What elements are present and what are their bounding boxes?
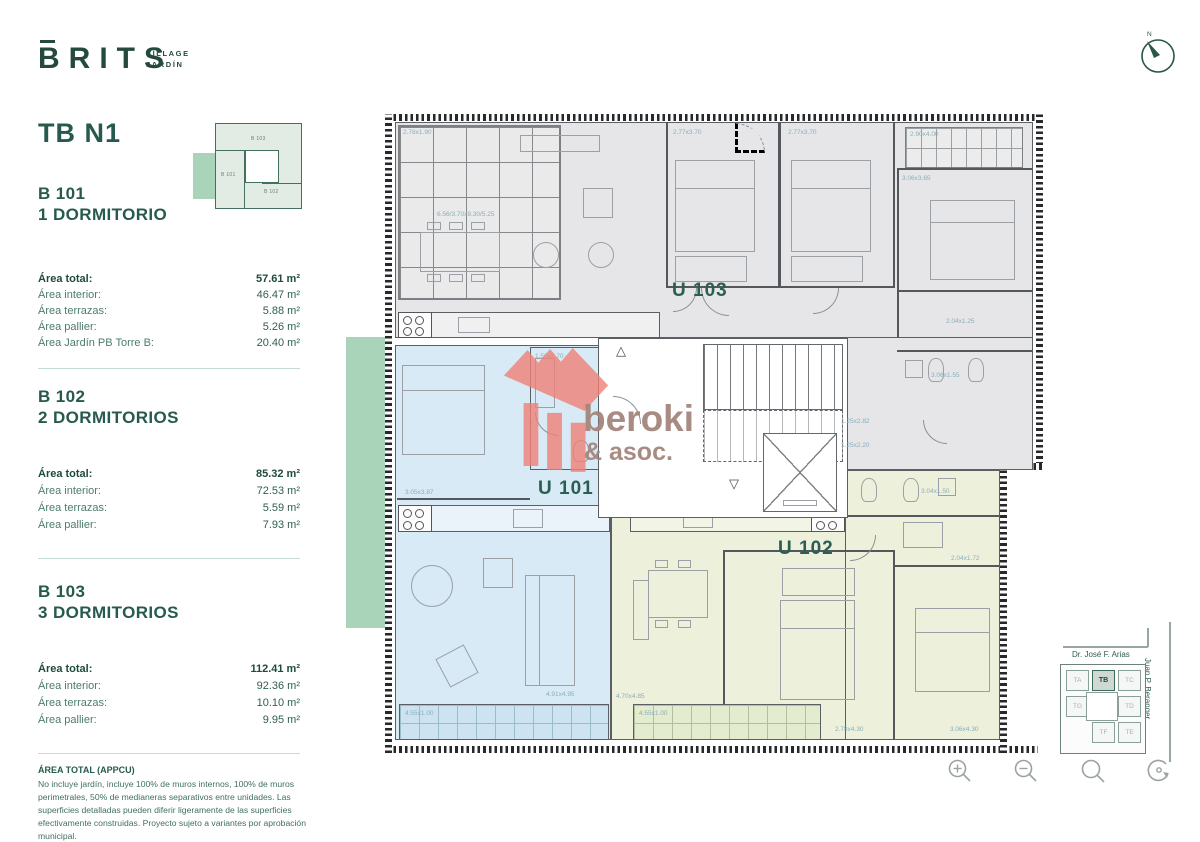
unit-b103-heading: B 103 3 DORMITORIOS — [38, 581, 179, 623]
area-row: Área pallier:9.95 m² — [38, 714, 300, 730]
chair — [678, 560, 691, 568]
wall-hatch-top — [388, 114, 1038, 121]
bed — [791, 160, 871, 252]
dim-label: 4.55x1.00 — [405, 710, 434, 717]
tower-te[interactable]: TE — [1118, 722, 1141, 743]
unit-label-u103: U 103 — [672, 280, 728, 302]
zoom-in-button[interactable] — [947, 758, 973, 784]
stove-icon — [398, 312, 432, 338]
wardrobe — [903, 522, 943, 548]
kitchen-u103 — [398, 312, 660, 338]
area-row: Área Jardín PB Torre B:20.40 m² — [38, 337, 300, 353]
search-button[interactable] — [1080, 758, 1106, 784]
footnote-body: No incluye jardín, incluye 100% de muros… — [38, 778, 312, 842]
dim-label: 2.78x1.90 — [403, 129, 432, 136]
sofa-line — [539, 575, 540, 686]
closet — [675, 256, 747, 282]
dim-label: 4.70x4.85 — [616, 693, 645, 700]
street-line-top — [1063, 646, 1148, 648]
area-row: Área interior:92.36 m² — [38, 680, 300, 696]
dim-label: 3.04x1.50 — [921, 488, 950, 495]
wall — [893, 550, 895, 740]
dim-label: 2.90x4.00 — [910, 131, 939, 138]
zoom-out-button[interactable] — [1013, 758, 1039, 784]
chair — [471, 222, 485, 230]
dim-label: 3.06x4.30 — [950, 726, 979, 733]
wall-hatch-right-upper — [1036, 114, 1043, 470]
armchair — [533, 242, 559, 268]
wall — [897, 168, 1033, 170]
toilet — [861, 478, 877, 502]
dim-label: 3.06x3.65 — [902, 175, 931, 182]
page-title: TB N1 — [38, 118, 121, 149]
unit-label-u101: U 101 — [538, 478, 594, 500]
side-table — [483, 558, 513, 588]
wall — [845, 515, 1000, 517]
watermark-name: beroki — [583, 398, 694, 440]
unit-b101-code: B 101 — [38, 183, 167, 204]
page: { "brand": {"name": "BRITS", "tag_line1"… — [0, 0, 1200, 842]
area-row: Área total:85.32 m² — [38, 468, 300, 484]
unit-b102-type: 2 DORMITORIOS — [38, 407, 179, 428]
unit-b102-heading: B 102 2 DORMITORIOS — [38, 386, 179, 428]
bed — [915, 608, 990, 692]
round-table — [411, 565, 453, 607]
dim-label: 4.55x1.00 — [639, 710, 668, 717]
closet — [791, 256, 863, 282]
headboard — [782, 568, 855, 596]
brand-tagline-2: JARDÍN — [146, 59, 190, 70]
stove-icon — [398, 505, 432, 532]
bed — [930, 200, 1015, 280]
tower-tc[interactable]: TC — [1118, 670, 1141, 691]
area-row: Área interior:46.47 m² — [38, 289, 300, 305]
keyplan-label-b101: B 101 — [221, 172, 236, 178]
dim-label: 2.77x3.70 — [788, 129, 817, 136]
dim-label: 3.05x3.87 — [405, 489, 434, 496]
watermark-sub: & asoc. — [584, 438, 673, 467]
tower-ta[interactable]: TA — [1066, 670, 1089, 691]
unit-b103-type: 3 DORMITORIOS — [38, 602, 179, 623]
dim-label: 2.04x1.25 — [946, 318, 975, 325]
area-row: Área total:112.41 m² — [38, 663, 300, 679]
dim-label: 2.78x4.30 — [835, 726, 864, 733]
area-row: Área terrazas:5.59 m² — [38, 502, 300, 518]
keyplan-line — [262, 183, 301, 184]
unit-label-u102: U 102 — [778, 538, 834, 560]
wall — [397, 498, 530, 500]
chair — [471, 274, 485, 282]
toilet — [903, 478, 919, 502]
shelf — [633, 580, 649, 640]
unit-b103-code: B 103 — [38, 581, 179, 602]
wall — [778, 122, 781, 288]
wall — [666, 122, 668, 288]
wall-hatch-left — [385, 114, 392, 753]
keyplan-label-b102: B 102 — [264, 189, 279, 195]
chair — [427, 222, 441, 230]
dim-label: 2.77x3.70 — [673, 129, 702, 136]
console — [520, 135, 600, 152]
area-row: Área terrazas:5.88 m² — [38, 305, 300, 321]
divider — [38, 558, 300, 559]
stairs-down-icon: ▽ — [729, 476, 739, 492]
bed-line — [915, 632, 990, 633]
kitchen-sink — [458, 317, 490, 333]
bed — [402, 365, 485, 455]
floor-plan: △ ▽ 2.78x1.90 — [383, 110, 1043, 756]
tower-tf[interactable]: TF — [1092, 722, 1115, 743]
wall — [897, 290, 1033, 292]
unit-b101-type: 1 DORMITORIO — [38, 204, 167, 225]
tower-tb[interactable]: TB — [1092, 670, 1115, 691]
dim-label: 1.25x2.20 — [841, 442, 870, 449]
dining-table-u102 — [648, 570, 708, 618]
side-table — [583, 188, 613, 218]
bed — [780, 600, 855, 700]
chair — [449, 274, 463, 282]
street-line-right — [1169, 622, 1171, 762]
sink — [905, 360, 923, 378]
chair — [655, 620, 668, 628]
compass-n-label: N — [1147, 31, 1152, 38]
divider — [38, 753, 300, 754]
sofa — [525, 575, 575, 686]
kitchen-cabinet — [513, 509, 543, 528]
stairs — [703, 344, 843, 410]
armchair — [588, 242, 614, 268]
tower-td[interactable]: TD — [1118, 696, 1141, 717]
bed — [675, 160, 755, 252]
area-row: Área pallier:7.93 m² — [38, 519, 300, 535]
wall — [897, 350, 1033, 352]
logo-macron — [40, 40, 55, 43]
dining-table-u103 — [420, 232, 500, 272]
zone-u102-right — [845, 470, 1000, 740]
wall-hatch-bottom — [388, 746, 1038, 753]
keyplan-line — [216, 150, 246, 151]
area-row: Área interior:72.53 m² — [38, 485, 300, 501]
street-line-corner — [1147, 628, 1149, 647]
wall-hatch-right-lower — [1000, 463, 1007, 753]
unit-b101-heading: B 101 1 DORMITORIO — [38, 183, 167, 225]
dim-label: 6.56/3.70x8.30/5.25 — [437, 211, 494, 218]
wall — [897, 168, 899, 338]
toilet — [968, 358, 984, 382]
brand-tagline-1: VILLAGE — [146, 48, 190, 59]
bed-line — [930, 222, 1015, 223]
courtyard — [1086, 692, 1118, 721]
bed-line — [675, 188, 755, 189]
dim-label: 2.04x1.72 — [951, 555, 980, 562]
elevator-door — [783, 500, 817, 506]
stairs-up-icon: △ — [616, 343, 626, 359]
reset-rotate-button[interactable] — [1146, 758, 1172, 784]
bed-line — [791, 188, 871, 189]
unit-b102-code: B 102 — [38, 386, 179, 407]
divider — [38, 368, 300, 369]
area-row: Área terrazas:10.10 m² — [38, 697, 300, 713]
brand-tagline: VILLAGE JARDÍN — [146, 48, 190, 70]
dim-label: 1.25x2.82 — [841, 418, 870, 425]
street-label-top: Dr. José F. Arias — [1072, 650, 1130, 659]
keyplan-core — [245, 150, 279, 183]
chair — [655, 560, 668, 568]
chair — [678, 620, 691, 628]
area-row: Área total:57.61 m² — [38, 273, 300, 289]
dim-label: 3.06x1.55 — [931, 372, 960, 379]
bed-line — [780, 628, 855, 629]
north-compass-icon: N — [1134, 26, 1180, 76]
wall — [893, 565, 1000, 567]
wall — [893, 122, 895, 288]
footnote-title: ÁREA TOTAL (APPCU) — [38, 765, 135, 775]
dim-label: 4.91x4.95 — [546, 691, 575, 698]
chair — [427, 274, 441, 282]
area-row: Área pallier:5.26 m² — [38, 321, 300, 337]
chair — [449, 222, 463, 230]
bed-line — [402, 390, 485, 391]
keyplan-label-b103: B 103 — [251, 136, 266, 142]
